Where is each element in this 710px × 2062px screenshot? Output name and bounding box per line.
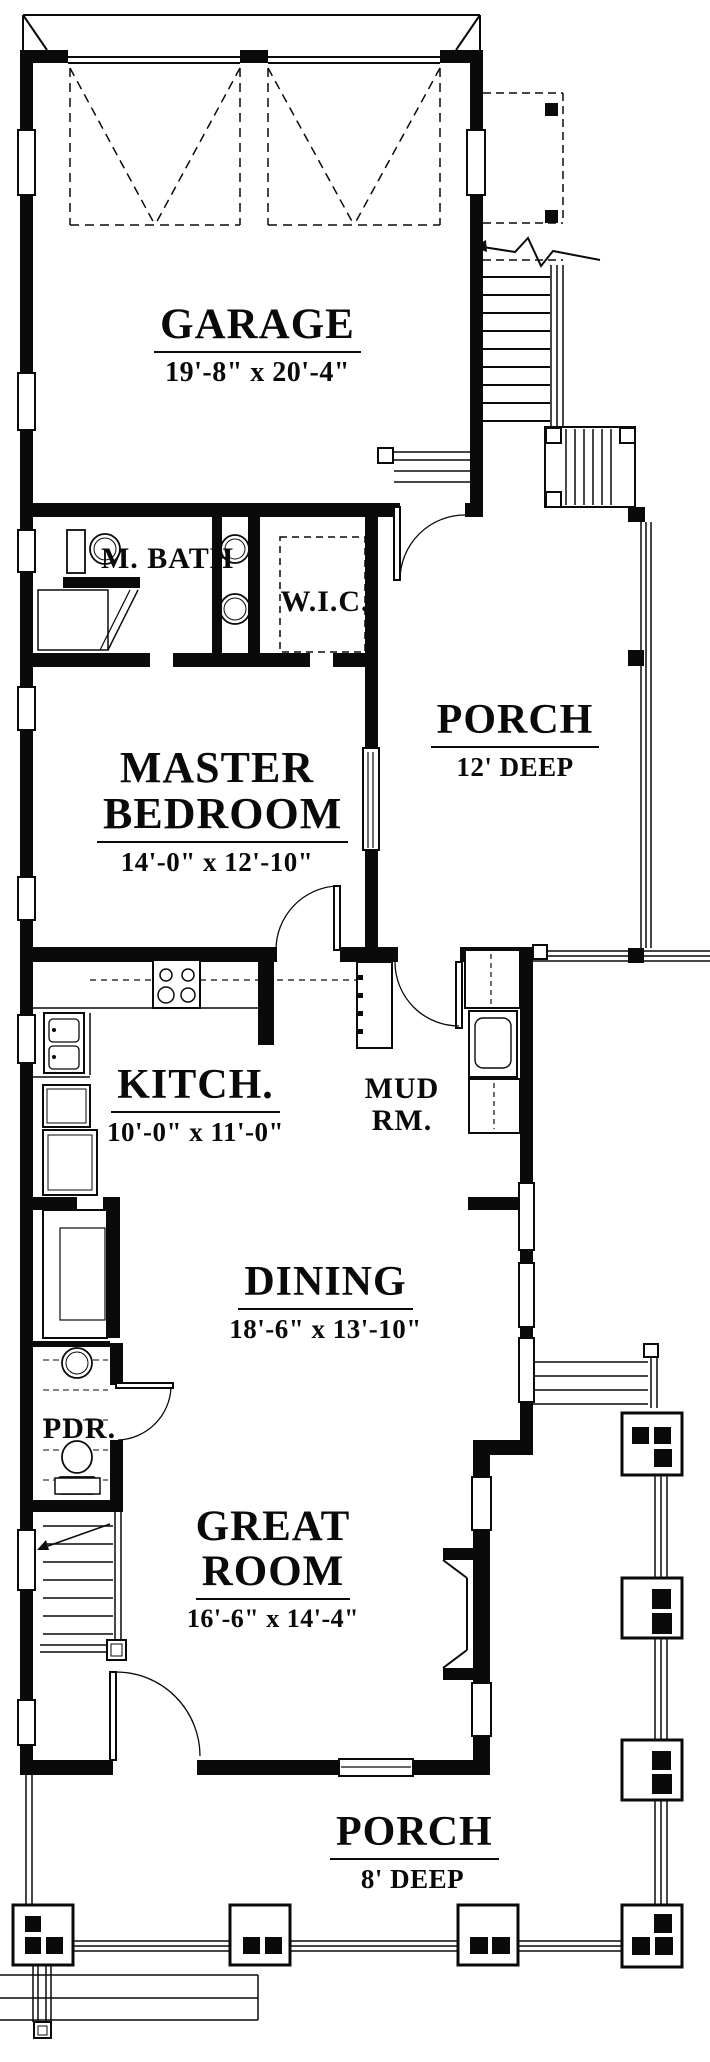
garage-dim: 19'-8" x 20'-4" [150, 358, 365, 387]
fireplace [443, 1560, 467, 1668]
front-door [110, 1672, 200, 1760]
front-porch-dim: 8' DEEP [330, 1865, 495, 1893]
refrigerator [43, 1130, 97, 1195]
label-garage: GARAGE 19'-8" x 20'-4" [150, 302, 365, 388]
kitchen-dim: 10'-0" x 11'-0" [98, 1118, 293, 1146]
roof-eave-lines [23, 15, 480, 50]
label-side-porch: PORCH 12' DEEP [430, 698, 600, 781]
great-room-line1: GREAT [190, 1504, 357, 1549]
stair-break-line [473, 238, 600, 266]
dishwasher [43, 1085, 90, 1127]
garage-rear-door [394, 507, 465, 580]
label-master-bath: M. BATH [95, 543, 240, 575]
label-wic: W.I.C. [275, 586, 375, 618]
kitchen-name: KITCH. [111, 1063, 280, 1113]
label-powder: PDR. [42, 1413, 117, 1445]
label-kitchen: KITCH. 10'-0" x 11'-0" [98, 1063, 293, 1146]
side-porch-dim: 12' DEEP [430, 753, 600, 781]
dining-name: DINING [238, 1260, 412, 1310]
powder-name: PDR. [43, 1413, 116, 1445]
great-room-line2: ROOM [196, 1549, 351, 1600]
master-bedroom-door [276, 886, 340, 950]
stove [153, 960, 200, 1008]
exterior-stair-treads [483, 265, 563, 427]
mud-room-door [395, 962, 462, 1028]
front-steps [0, 1965, 258, 2038]
label-great-room: GREAT ROOM 16'-6" x 14'-4" [178, 1504, 368, 1633]
label-master-bedroom: MASTER BEDROOM 14'-0" x 12'-10" [97, 745, 337, 877]
great-room-dim: 16'-6" x 14'-4" [178, 1605, 368, 1632]
stair-landing-railing [545, 427, 635, 507]
powder-door [116, 1383, 173, 1440]
wic-name: W.I.C. [280, 586, 369, 618]
label-dining: DINING 18'-6" x 13'-10" [218, 1260, 433, 1343]
kitchen-sink [44, 1013, 84, 1073]
master-bath-name: M. BATH [101, 543, 234, 575]
front-porch-name: PORCH [330, 1810, 499, 1860]
pantry [43, 1210, 107, 1338]
side-porch-name: PORCH [431, 698, 600, 748]
washer-dryer [465, 950, 520, 1133]
floor-plan: GARAGE 19'-8" x 20'-4" M. BATH W.I.C. PO… [0, 0, 710, 2062]
label-front-porch: PORCH 8' DEEP [330, 1810, 495, 1893]
upper-deck-dashed [483, 93, 563, 260]
master-bedroom-line1: MASTER [114, 745, 320, 791]
mud-lockers [357, 962, 392, 1048]
garage-door-swing-dashed [70, 68, 440, 225]
mud-room-name: MUD RM. [342, 1073, 462, 1136]
garage-interior-steps [378, 448, 470, 482]
label-mud-room: MUD RM. [342, 1073, 462, 1136]
east-side-steps [533, 1344, 658, 1408]
master-bedroom-dim: 14'-0" x 12'-10" [97, 848, 337, 876]
garage-name: GARAGE [154, 302, 361, 353]
master-bedroom-line2: BEDROOM [97, 791, 348, 843]
dining-dim: 18'-6" x 13'-10" [218, 1315, 433, 1343]
